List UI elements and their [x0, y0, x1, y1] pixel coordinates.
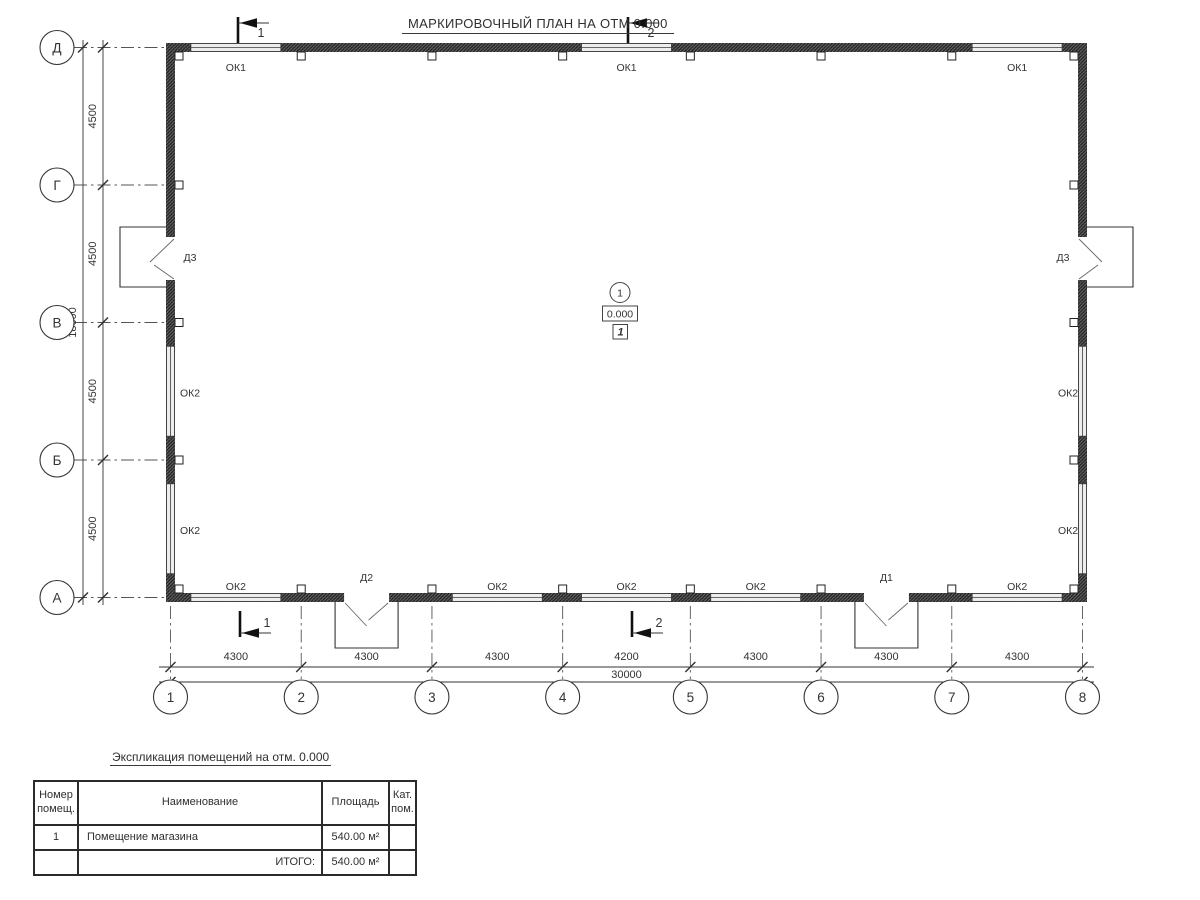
- pilaster: [1070, 52, 1078, 60]
- door-label: Д2: [360, 572, 373, 584]
- header-category: Кат. пом.: [389, 781, 416, 825]
- window-label: ОК2: [1058, 525, 1078, 537]
- window-label: ОК2: [746, 581, 766, 593]
- dim-label-left: 4500: [87, 379, 99, 403]
- schedule-title: Экспликация помещений на отм. 0.000: [110, 750, 331, 766]
- elevation-label: 0.000: [607, 309, 633, 321]
- window-label: ОК2: [1007, 581, 1027, 593]
- axis-bubble-col-label: 1: [167, 690, 175, 705]
- axis-bubble-col-label: 3: [428, 690, 436, 705]
- door-swing: [369, 603, 389, 620]
- pilaster: [686, 585, 694, 593]
- section-label: 1: [264, 616, 271, 630]
- section-label: 2: [656, 616, 663, 630]
- door-opening: [864, 592, 909, 603]
- room-category-cell: [389, 825, 416, 850]
- axis-bubble-col-label: 8: [1079, 690, 1087, 705]
- axis-bubble-col-label: 6: [817, 690, 825, 705]
- pilaster: [1070, 456, 1078, 464]
- axis-bubble-row-label: Г: [53, 178, 61, 193]
- pilaster: [175, 52, 183, 60]
- dim-label-left: 4500: [87, 104, 99, 128]
- dim-label-left: 4500: [87, 242, 99, 266]
- dim-label-bottom: 4300: [743, 651, 767, 663]
- dim-label-bottom: 4200: [614, 651, 638, 663]
- door-opening: [344, 592, 389, 603]
- window-label: ОК2: [1058, 387, 1078, 399]
- pilaster: [175, 319, 183, 327]
- plan-title: МАРКИРОВОЧНЫЙ ПЛАН НА ОТМ 0.000: [402, 16, 674, 34]
- header-room-number: Номер помещ.: [34, 781, 78, 825]
- schedule-total-row: ИТОГО: 540.00 м²: [34, 850, 416, 875]
- axis-bubble-row-label: А: [52, 590, 61, 605]
- window-label: ОК2: [180, 387, 200, 399]
- pilaster: [559, 585, 567, 593]
- pilaster: [948, 585, 956, 593]
- pilaster: [175, 456, 183, 464]
- door-label: Д1: [880, 572, 893, 584]
- category-label: 1: [617, 327, 623, 339]
- floor-plan-drawing: 4500450045004500180004300430043004200430…: [0, 0, 1200, 740]
- pilaster: [175, 181, 183, 189]
- pilaster: [948, 52, 956, 60]
- dim-label-bottom: 4300: [1005, 651, 1029, 663]
- door-porch: [855, 601, 918, 648]
- room-number-cell: 1: [34, 825, 78, 850]
- window-label: ОК1: [616, 62, 636, 74]
- pilaster: [175, 585, 183, 593]
- total-empty-cell: [34, 850, 78, 875]
- dim-label-bottom: 4300: [485, 651, 509, 663]
- total-category-cell: [389, 850, 416, 875]
- window-label: ОК2: [616, 581, 636, 593]
- dim-label-bottom: 4300: [224, 651, 248, 663]
- door-swing: [345, 603, 367, 626]
- door-swing: [865, 603, 887, 626]
- pilaster: [817, 52, 825, 60]
- door-porch: [1086, 227, 1133, 287]
- door-porch: [120, 227, 167, 287]
- total-label-cell: ИТОГО:: [78, 850, 322, 875]
- pilaster: [428, 585, 436, 593]
- dim-label-total-bottom: 30000: [611, 669, 642, 681]
- section-arrow-icon: [634, 628, 651, 638]
- schedule-row: 1 Помещение магазина 540.00 м²: [34, 825, 416, 850]
- room-schedule: Экспликация помещений на отм. 0.000 Номе…: [33, 748, 417, 876]
- dim-label-bottom: 4300: [874, 651, 898, 663]
- door-swing: [888, 603, 908, 620]
- axis-bubble-col-label: 7: [948, 690, 956, 705]
- room-area-cell: 540.00 м²: [322, 825, 389, 850]
- pilaster: [1070, 585, 1078, 593]
- pilaster: [559, 52, 567, 60]
- axis-bubble-row-label: Д: [52, 40, 61, 55]
- window-label: ОК2: [226, 581, 246, 593]
- pilaster: [817, 585, 825, 593]
- section-arrow-icon: [242, 628, 259, 638]
- door-label: Д3: [184, 252, 197, 264]
- pilaster: [1070, 181, 1078, 189]
- room-number-label: 1: [617, 288, 623, 300]
- pilaster: [1070, 319, 1078, 327]
- schedule-header-row: Номер помещ. Наименование Площадь Кат. п…: [34, 781, 416, 825]
- header-name: Наименование: [78, 781, 322, 825]
- pilaster: [686, 52, 694, 60]
- door-label: Д3: [1057, 252, 1070, 264]
- section-label: 1: [258, 26, 265, 40]
- door-porch: [335, 601, 398, 648]
- schedule-table: Номер помещ. Наименование Площадь Кат. п…: [33, 780, 417, 876]
- room-name-cell: Помещение магазина: [78, 825, 322, 850]
- window-label: ОК1: [1007, 62, 1027, 74]
- pilaster: [297, 52, 305, 60]
- axis-bubble-col-label: 5: [687, 690, 695, 705]
- window-label: ОК2: [180, 525, 200, 537]
- total-value-cell: 540.00 м²: [322, 850, 389, 875]
- header-area: Площадь: [322, 781, 389, 825]
- axis-bubble-row-label: Б: [53, 453, 62, 468]
- axis-bubble-row-label: В: [52, 315, 61, 330]
- axis-bubble-col-label: 4: [559, 690, 567, 705]
- pilaster: [297, 585, 305, 593]
- pilaster: [428, 52, 436, 60]
- section-arrow-icon: [240, 18, 257, 28]
- dim-label-left: 4500: [87, 517, 99, 541]
- axis-bubble-col-label: 2: [297, 690, 305, 705]
- dim-label-bottom: 4300: [354, 651, 378, 663]
- window-label: ОК2: [487, 581, 507, 593]
- window-label: ОК1: [226, 62, 246, 74]
- drawing-canvas: 4500450045004500180004300430043004200430…: [0, 0, 1200, 900]
